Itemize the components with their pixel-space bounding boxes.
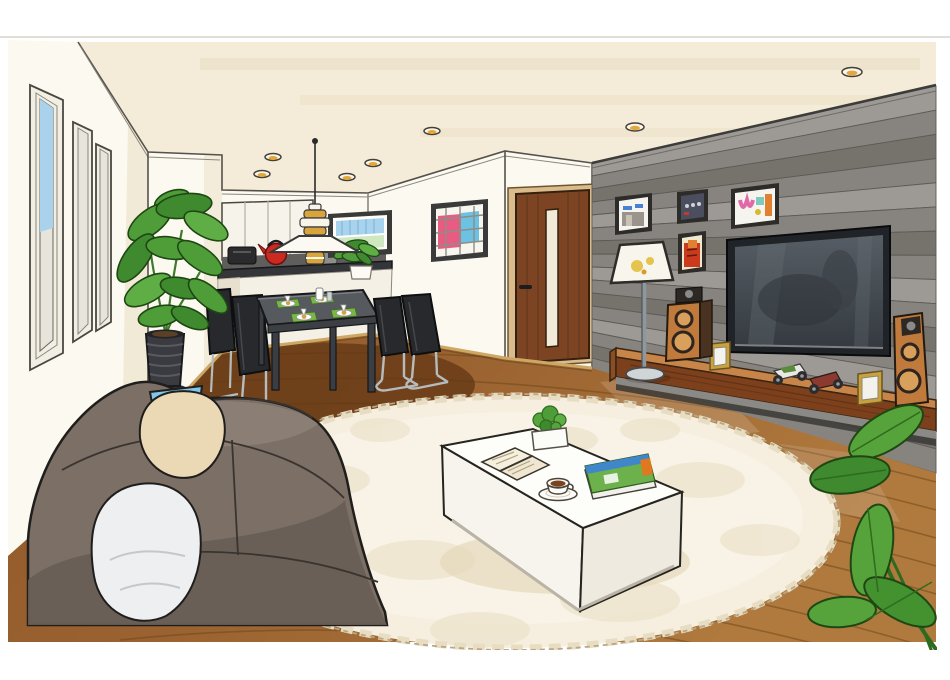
door-handle <box>519 285 532 289</box>
downlight-icon <box>626 123 644 131</box>
glass-on-table <box>327 292 332 301</box>
tv <box>727 226 890 356</box>
photo-frame <box>710 342 730 370</box>
interior-sketch: Hand-drawn marker sketch of a living-din… <box>0 0 950 680</box>
window <box>30 85 63 370</box>
stained-glass-art <box>431 199 488 262</box>
picture-frame <box>677 189 708 224</box>
window <box>73 122 92 342</box>
page: Hand-drawn marker sketch of a living-din… <box>0 0 950 680</box>
downlight-icon <box>265 154 281 161</box>
door <box>508 184 596 368</box>
photo-frame <box>858 371 882 405</box>
downlight-icon <box>254 171 270 178</box>
picture-frame <box>615 193 652 235</box>
jug-on-table <box>316 288 323 300</box>
toaster <box>228 247 256 264</box>
picture-frame <box>731 183 779 229</box>
window <box>96 144 111 331</box>
speaker <box>894 313 928 406</box>
downlight-icon <box>842 68 862 77</box>
door-glass <box>546 209 558 347</box>
downlight-icon <box>365 160 381 167</box>
downlight-icon <box>424 128 440 135</box>
picture-frame <box>678 231 706 274</box>
cream-pillow <box>140 391 225 478</box>
downlight-icon <box>339 174 355 181</box>
